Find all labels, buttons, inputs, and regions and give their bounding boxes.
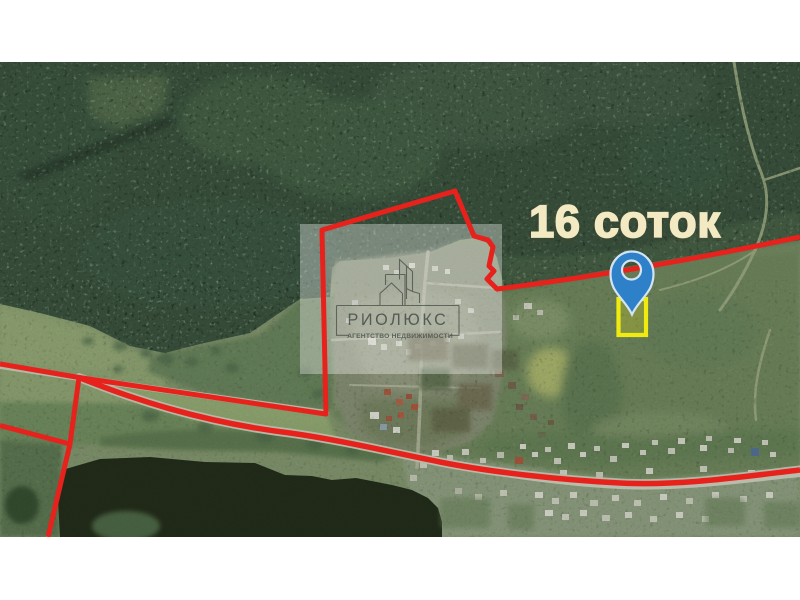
svg-text:16 соток: 16 соток (529, 196, 720, 247)
svg-text:РИОЛЮКС: РИОЛЮКС (348, 311, 449, 329)
svg-text:АГЕНТСТВО НЕДВИЖИМОСТИ: АГЕНТСТВО НЕДВИЖИМОСТИ (347, 333, 453, 340)
